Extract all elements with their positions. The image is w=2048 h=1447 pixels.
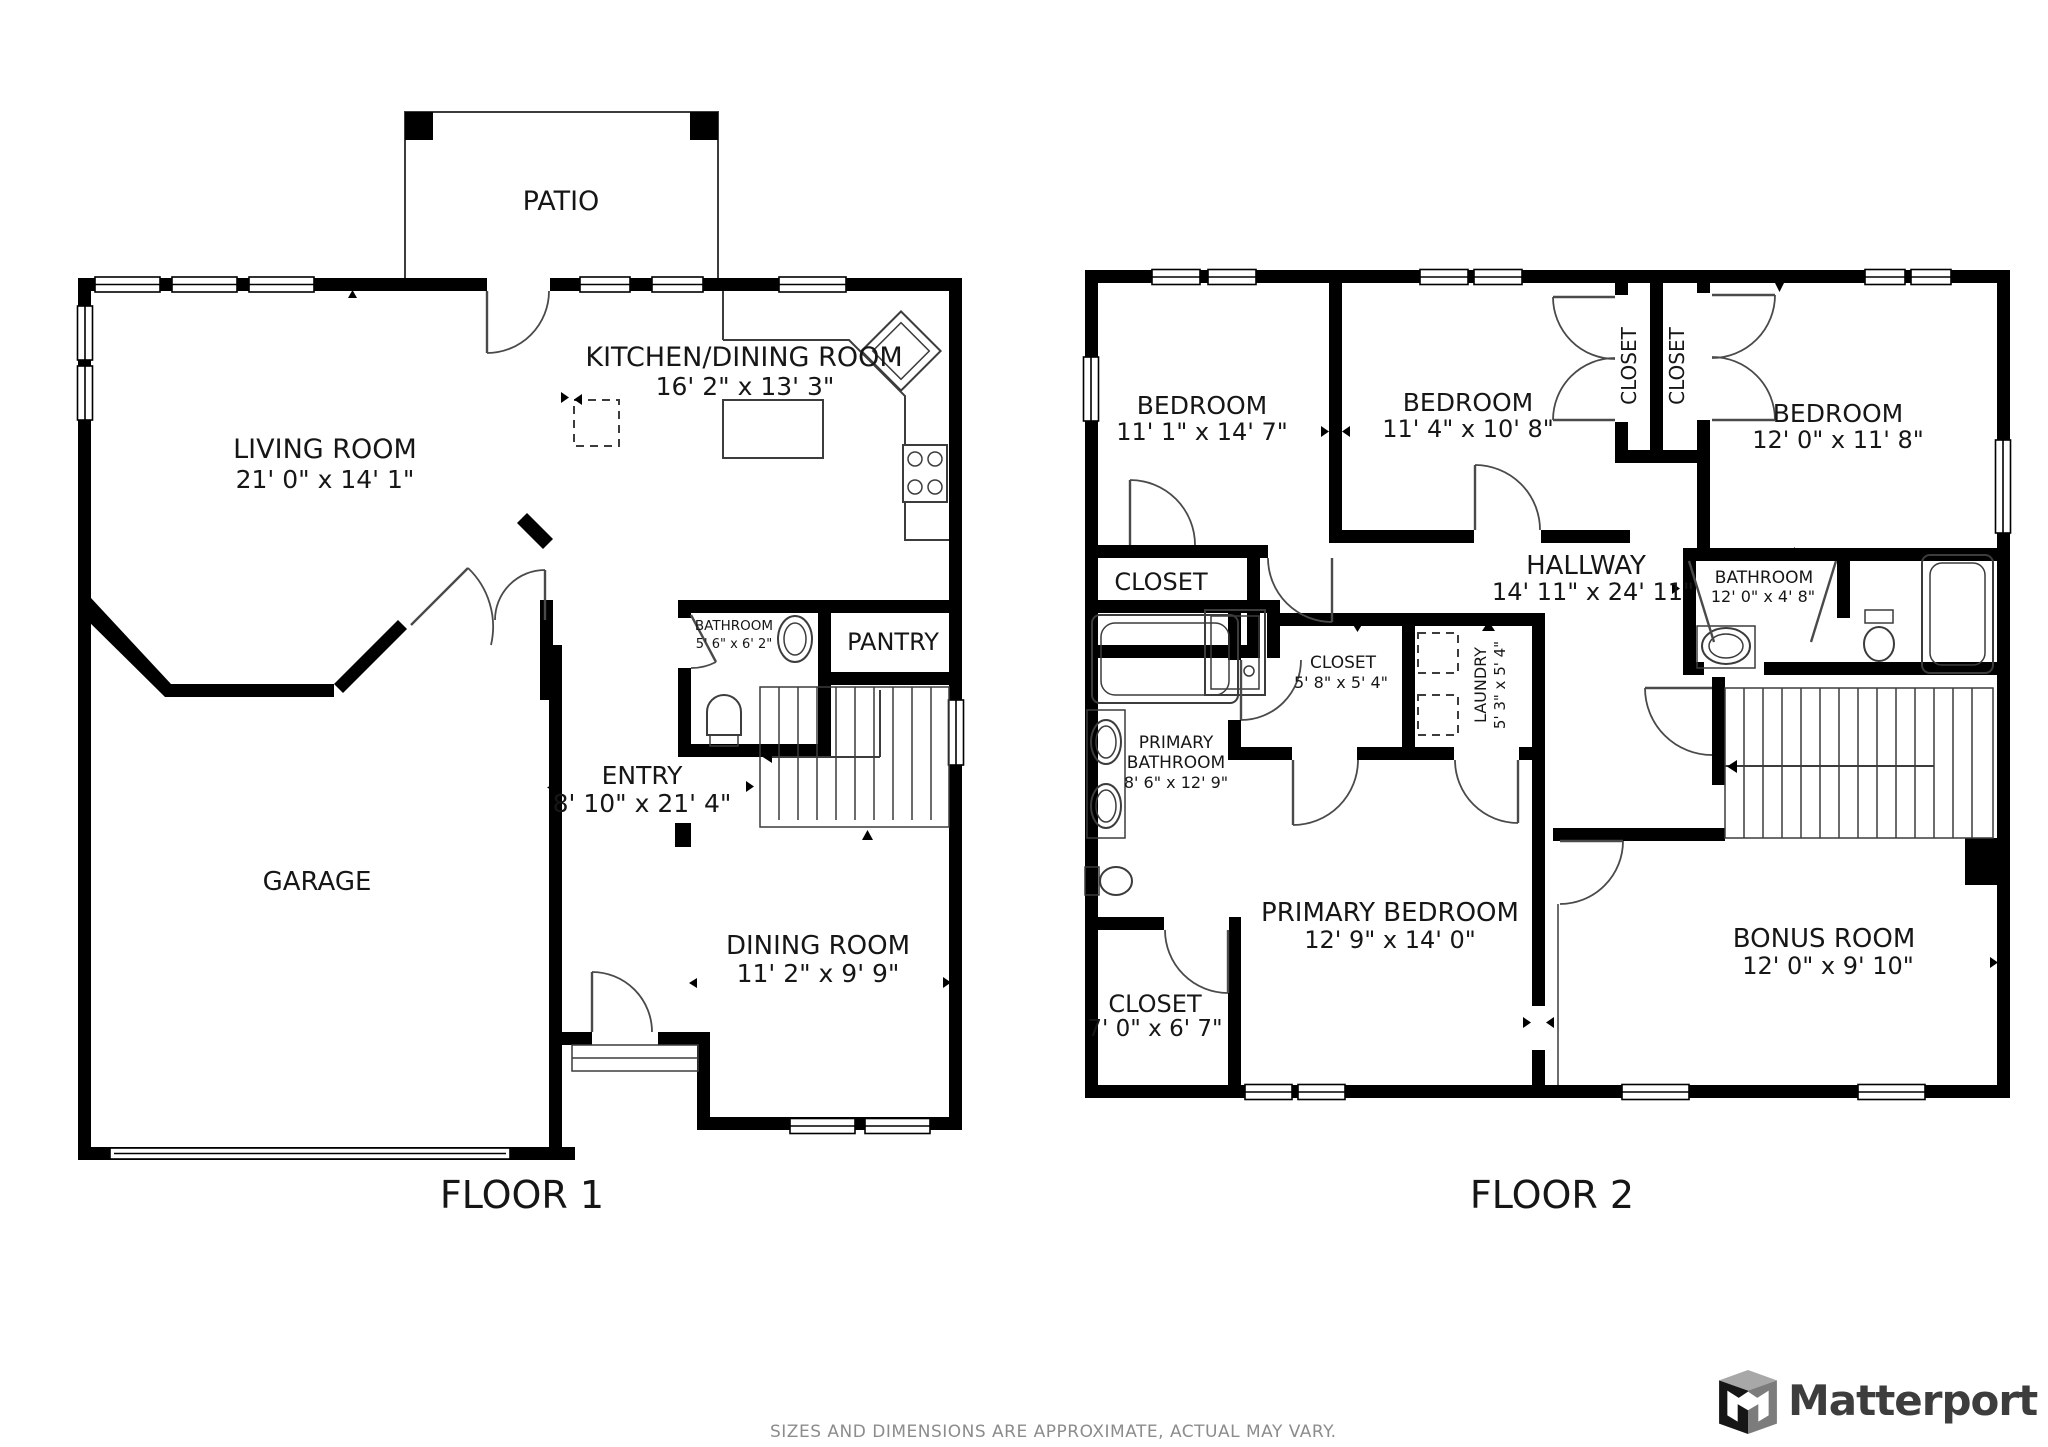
room-label-hallway: HALLWAY	[1526, 551, 1646, 581]
washer-icon	[1418, 633, 1458, 673]
window	[1865, 270, 1905, 285]
window	[1245, 1085, 1292, 1100]
window	[1208, 270, 1256, 285]
porch-step	[572, 1045, 698, 1071]
kitchen-island	[723, 400, 823, 458]
room-label-kitchen-dining: KITCHEN/DINING ROOM	[585, 342, 902, 373]
room-dims-primary-bathroom: 8' 6" x 12' 9"	[1124, 773, 1228, 792]
staircase-floor1	[760, 687, 949, 840]
brand-wordmark: Matterport	[1788, 1376, 2037, 1425]
room-label-patio: PATIO	[523, 186, 600, 217]
room-label-closet-b: CLOSET	[1665, 326, 1689, 404]
room-dims-bedroom-1: 11' 1" x 14' 7"	[1116, 418, 1288, 446]
window	[172, 277, 237, 292]
bathtub-icon	[1922, 555, 1993, 673]
window	[1084, 357, 1099, 421]
window	[78, 306, 93, 360]
floor1-title: FLOOR 1	[440, 1173, 604, 1217]
window	[1298, 1085, 1345, 1100]
room-dims-bonus-room: 12' 0" x 9' 10"	[1742, 952, 1914, 980]
patio-post	[405, 112, 433, 140]
toilet-icon	[1864, 610, 1894, 661]
window	[1996, 440, 2011, 533]
floor1-walls	[78, 278, 962, 1160]
room-dims-bedroom-2: 11' 4" x 10' 8"	[1382, 415, 1554, 443]
room-label-bedroom-3: BEDROOM	[1773, 399, 1904, 428]
window	[779, 277, 846, 292]
disclaimer-text: SIZES AND DIMENSIONS ARE APPROXIMATE, AC…	[770, 1422, 1336, 1442]
window	[580, 277, 630, 292]
room-label-primary-bathroom-line2: BATHROOM	[1127, 753, 1225, 773]
window	[1474, 270, 1522, 285]
garage-door-wall	[334, 620, 407, 693]
floor2-title: FLOOR 2	[1470, 1173, 1634, 1217]
room-label-entry: ENTRY	[602, 761, 684, 790]
room-label-bathroom1: BATHROOM	[695, 618, 773, 634]
room-label-bedroom-1: BEDROOM	[1137, 391, 1268, 420]
bathtub-icon	[1092, 615, 1238, 703]
room-dims-dining-room: 11' 2" x 9' 9"	[737, 959, 900, 988]
window	[1420, 270, 1468, 285]
room-label-primary-bathroom-line1: PRIMARY	[1139, 733, 1214, 753]
window	[652, 277, 703, 292]
dryer-icon	[1418, 695, 1458, 735]
floor1-plan: PATIO LIVING ROOM 21' 0" x 14' 1" KITCHE…	[78, 112, 964, 1217]
room-dims-bathroom1: 5' 6" x 6' 2"	[696, 637, 772, 652]
window	[949, 700, 964, 765]
room-label-living-room: LIVING ROOM	[233, 434, 417, 465]
room-label-bedroom-2: BEDROOM	[1403, 388, 1534, 417]
staircase-floor2	[1725, 688, 1993, 838]
matterport-logo: Matterport	[1716, 1370, 2036, 1434]
room-label-dining-room: DINING ROOM	[726, 931, 910, 961]
room-label-closet-a: CLOSET	[1617, 326, 1641, 404]
room-label-primary-bedroom: PRIMARY BEDROOM	[1261, 898, 1519, 928]
window	[1911, 270, 1951, 285]
window	[78, 366, 93, 420]
room-dims-closet-primary: 7' 0" x 6' 7"	[1087, 1016, 1222, 1042]
room-label-closet-primary: CLOSET	[1108, 990, 1202, 1018]
laundry-fixtures	[1418, 633, 1458, 735]
window	[1622, 1085, 1689, 1100]
room-label-closet-hall: CLOSET	[1310, 653, 1377, 673]
window	[790, 1119, 855, 1134]
floor2-plan: BEDROOM 11' 1" x 14' 7" BEDROOM 11' 4" x…	[1084, 270, 2011, 1218]
room-dims-hallway: 14' 11" x 24' 11"	[1492, 578, 1694, 606]
stair-direction-arrow	[1727, 760, 1737, 773]
angled-wall	[78, 598, 334, 697]
room-label-garage: GARAGE	[263, 867, 372, 897]
room-dims-laundry: 5' 3" x 5' 4"	[1491, 641, 1509, 729]
kitchen-counter	[574, 291, 949, 540]
room-dims-bedroom-3: 12' 0" x 11' 8"	[1752, 426, 1924, 454]
room-dims-entry: 8' 10" x 21' 4"	[553, 789, 732, 818]
opening-marker	[862, 830, 873, 840]
room-dims-living-room: 21' 0" x 14' 1"	[236, 465, 415, 494]
window	[249, 277, 314, 292]
room-label-closet-bed1: CLOSET	[1114, 568, 1208, 596]
toilet-icon	[707, 695, 741, 746]
room-label-pantry: PANTRY	[847, 628, 939, 656]
floor1-doors	[411, 291, 716, 1032]
room-dims-primary-bedroom: 12' 9" x 14' 0"	[1304, 926, 1476, 954]
entry-pillar	[675, 823, 691, 847]
wall-stub	[517, 513, 553, 549]
window	[95, 277, 160, 292]
room-dims-kitchen-dining: 16' 2" x 13' 3"	[656, 372, 835, 401]
room-label-bonus-room: BONUS ROOM	[1733, 924, 1916, 954]
room-label-laundry: LAUNDRY	[1471, 647, 1490, 723]
room-label-bathroom2: BATHROOM	[1715, 568, 1813, 588]
patio-post	[690, 112, 718, 140]
room-dims-closet-hall: 5' 8" x 5' 4"	[1294, 673, 1388, 692]
window	[865, 1119, 930, 1134]
appliance-dashed	[574, 400, 619, 446]
stove-icon	[903, 445, 947, 502]
room-dims-bathroom2: 12' 0" x 4' 8"	[1711, 587, 1815, 606]
garage-door	[110, 1148, 510, 1159]
window	[1858, 1085, 1925, 1100]
window	[1152, 270, 1200, 285]
matterport-logo-icon	[1716, 1370, 1780, 1434]
floor-plan-canvas: PATIO LIVING ROOM 21' 0" x 14' 1" KITCHE…	[0, 0, 2048, 1447]
